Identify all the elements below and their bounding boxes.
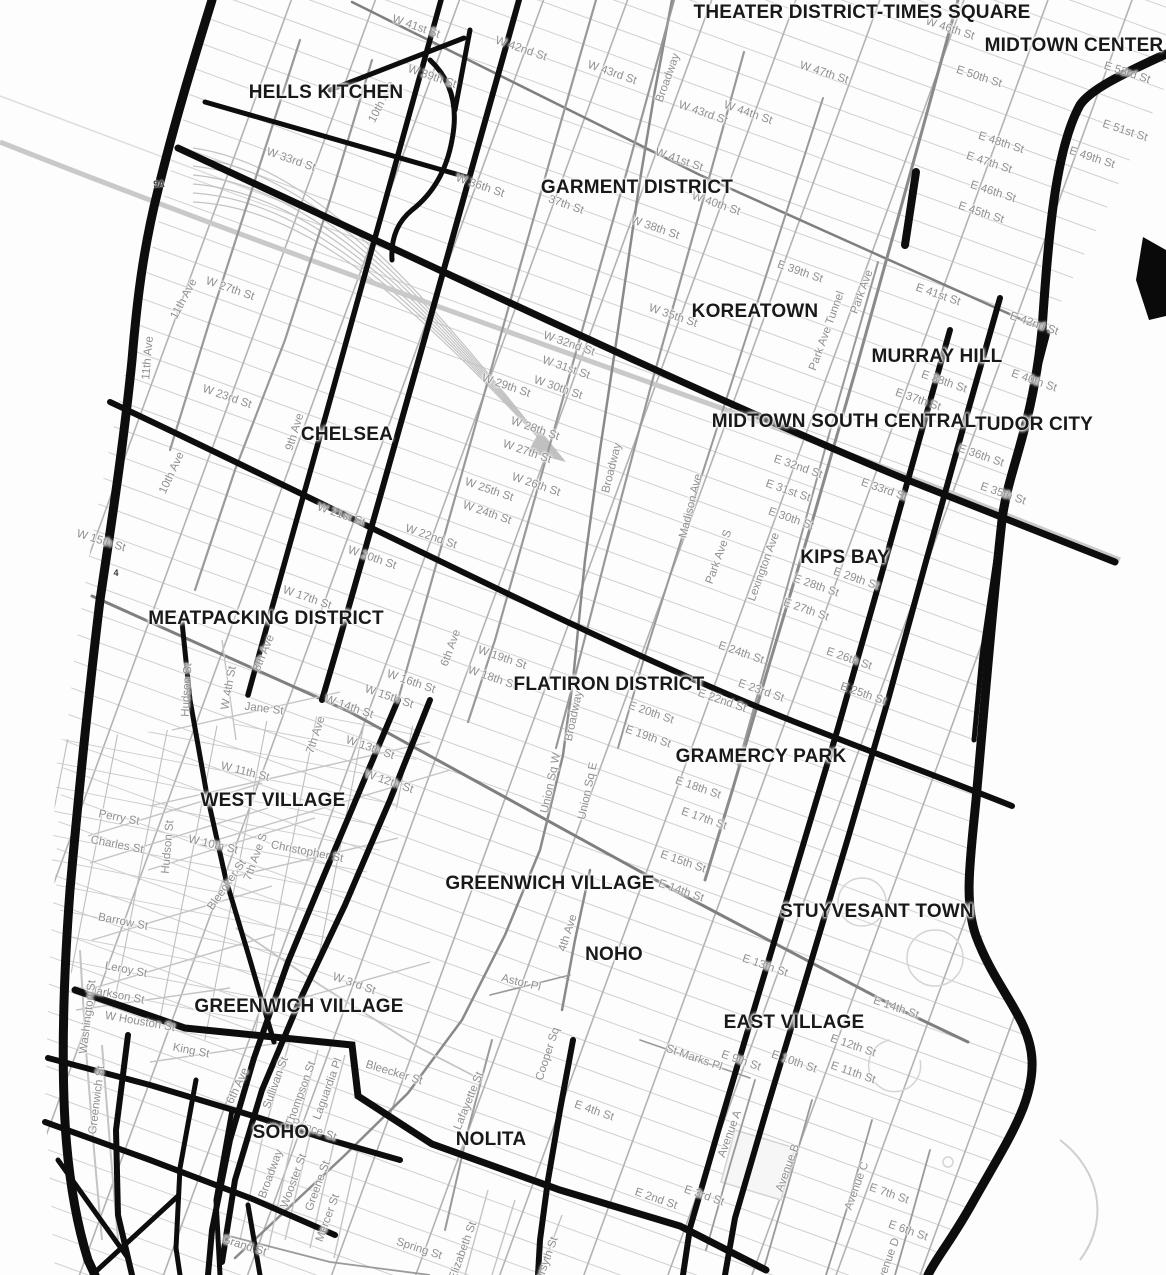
neighborhood-label: TUDOR CITY [975,414,1093,436]
neighborhood-label: HELLS KITCHEN [249,82,404,104]
neighborhood-label: CHELSEA [301,424,393,446]
shore-curve [1060,1140,1097,1260]
neighborhood-label: NOLITA [456,1129,527,1151]
neighborhood-label: GARMENT DISTRICT [541,177,733,199]
neighborhood-label: MIDTOWN CENTER [985,35,1164,57]
fdr-drive [928,54,1166,1275]
neighborhood-label: MEATPACKING DISTRICT [148,608,384,630]
neighborhood-label: GRAMERCY PARK [676,746,847,768]
route-marker: 9A [153,179,165,189]
map-canvas[interactable]: THEATER DISTRICT-TIMES SQUAREMIDTOWN CEN… [0,0,1166,1275]
neighborhood-label: WEST VILLAGE [201,790,346,812]
neighborhood-label: NOHO [585,944,643,966]
neighborhood-label: EAST VILLAGE [724,1012,865,1034]
neighborhood-label: SOHO [253,1122,310,1144]
neighborhood-label: FLATIRON DISTRICT [514,674,705,696]
neighborhood-label: GREENWICH VILLAGE [194,996,403,1018]
neighborhood-label: MURRAY HILL [872,346,1003,368]
neighborhood-label: MIDTOWN SOUTH CENTRAL [712,411,977,433]
neighborhood-label: KIPS BAY [800,547,890,569]
neighborhood-label: GREENWICH VILLAGE [445,873,654,895]
route-marker: 4 [113,568,118,578]
neighborhood-label: THEATER DISTRICT-TIMES SQUARE [694,2,1031,24]
ferry-arrow [1136,237,1166,320]
neighborhood-label: KOREATOWN [692,301,819,323]
neighborhood-label: STUYVESANT TOWN [780,901,974,923]
